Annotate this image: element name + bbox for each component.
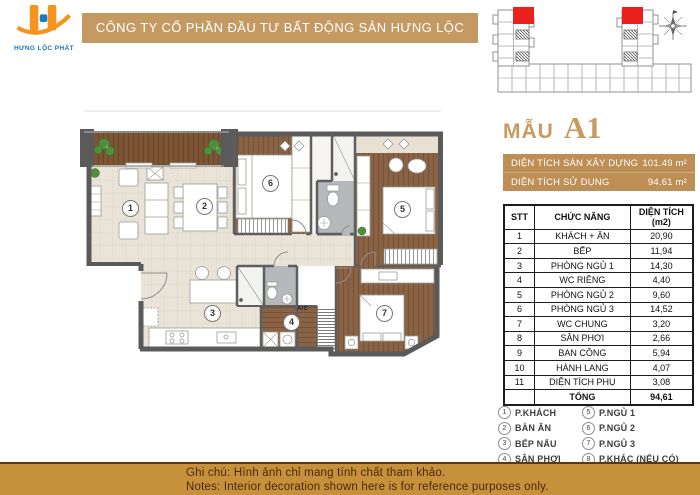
table-row: 3PHÒNG NGỦ 114,30 bbox=[504, 258, 693, 273]
footer-note-bar: Ghi chú: Hình ảnh chỉ mang tính chất tha… bbox=[0, 462, 700, 495]
table-row: 9BAN CÔNG5,94 bbox=[504, 346, 693, 361]
total-label: TỔNG bbox=[534, 390, 630, 405]
room-number-kitchen: 3 bbox=[204, 305, 221, 322]
gross-area-label: DIỆN TÍCH SÀN XÂY DỰNG bbox=[511, 158, 638, 169]
header-area: DIỆN TÍCH (m2) bbox=[630, 205, 693, 229]
company-name-bar: CÔNG TY CỔ PHẦN ĐẦU TƯ BẤT ĐỘNG SẢN HƯNG… bbox=[82, 13, 478, 43]
legend-item: 3BẾP NẤU bbox=[498, 436, 582, 452]
compass-icon bbox=[659, 10, 687, 40]
header-func: CHỨC NĂNG bbox=[534, 205, 630, 229]
room-number-bedroom-3: 7 bbox=[376, 305, 393, 322]
table-row: 7WC CHUNG3,20 bbox=[504, 317, 693, 332]
highlighted-unit-left bbox=[513, 7, 534, 24]
table-row: 10HÀNH LANG4,07 bbox=[504, 361, 693, 376]
unit-title-code: A1 bbox=[564, 110, 602, 146]
room-number-bedroom-2: 6 bbox=[262, 175, 279, 192]
gross-area-value: 101.49 m² bbox=[642, 158, 687, 169]
room-number-bedroom-1: 5 bbox=[394, 201, 411, 218]
table-row: 1KHÁCH + ĂN20,90 bbox=[504, 229, 693, 244]
footer-note-vi: Ghi chú: Hình ảnh chỉ mang tính chất tha… bbox=[0, 464, 700, 480]
room-number-dining: 2 bbox=[196, 198, 213, 215]
company-logo: HƯNG LỘC PHÁT bbox=[8, 4, 80, 54]
net-area-row: DIỆN TÍCH SỬ DỤNG 94.61 m² bbox=[503, 173, 695, 191]
legend-item: 6P.NGỦ 2 bbox=[582, 421, 698, 437]
ac-louver bbox=[318, 309, 335, 349]
legend-item: 1P.KHÁCH bbox=[498, 405, 582, 421]
highlighted-unit-right bbox=[622, 7, 643, 24]
brochure-page: HƯNG LỘC PHÁT CÔNG TY CỔ PHẦN ĐẦU TƯ BẤT… bbox=[0, 0, 700, 495]
table-total-row: TỔNG 94,61 bbox=[504, 390, 693, 405]
area-metric-bars: DIỆN TÍCH SÀN XÂY DỰNG 101.49 m² DIỆN TÍ… bbox=[503, 154, 695, 191]
legend-item: 5P.NGỦ 1 bbox=[582, 405, 698, 421]
room-number-drying-yard: 4 bbox=[283, 314, 300, 331]
legend-item: 2BÀN ĂN bbox=[498, 421, 582, 437]
room-legend: 1P.KHÁCH 2BÀN ĂN 3BẾP NẤU 4SÂN PHƠI 5P.N… bbox=[498, 405, 698, 467]
header-stt: STT bbox=[504, 205, 534, 229]
table-header-row: STT CHỨC NĂNG DIỆN TÍCH (m2) bbox=[504, 205, 693, 229]
footer-note-en: Notes: Interior decoration shown here is… bbox=[0, 480, 700, 494]
gross-area-row: DIỆN TÍCH SÀN XÂY DỰNG 101.49 m² bbox=[503, 154, 695, 173]
table-row: 11DIỆN TÍCH PHỤ3,08 bbox=[504, 375, 693, 390]
net-area-value: 94.61 m² bbox=[648, 177, 687, 188]
legend-item: 7P.NGỦ 3 bbox=[582, 436, 698, 452]
logo-mark-icon bbox=[15, 4, 73, 40]
floor-plan bbox=[74, 103, 464, 393]
hallway-floor bbox=[229, 234, 359, 266]
unit-title: MẪU A1 bbox=[503, 110, 602, 146]
total-value: 94,61 bbox=[630, 390, 693, 405]
logo-text: HƯNG LỘC PHÁT bbox=[8, 45, 80, 52]
total-empty-cell bbox=[504, 390, 534, 405]
site-key-plan bbox=[483, 2, 695, 104]
table-row: 4WC RIÊNG4,40 bbox=[504, 273, 693, 288]
table-row: 6PHÒNG NGỦ 314,52 bbox=[504, 302, 693, 317]
unit-title-prefix: MẪU bbox=[503, 120, 554, 144]
ac-label: A/C bbox=[297, 306, 308, 312]
net-area-label: DIỆN TÍCH SỬ DỤNG bbox=[511, 177, 609, 188]
table-row: 8SÂN PHƠI2,66 bbox=[504, 331, 693, 346]
area-table: STT CHỨC NĂNG DIỆN TÍCH (m2) 1KHÁCH + ĂN… bbox=[503, 204, 694, 406]
table-row: 5PHÒNG NGỦ 29,60 bbox=[504, 288, 693, 303]
table-row: 2BẾP11,94 bbox=[504, 244, 693, 259]
room-number-living: 1 bbox=[122, 200, 139, 217]
